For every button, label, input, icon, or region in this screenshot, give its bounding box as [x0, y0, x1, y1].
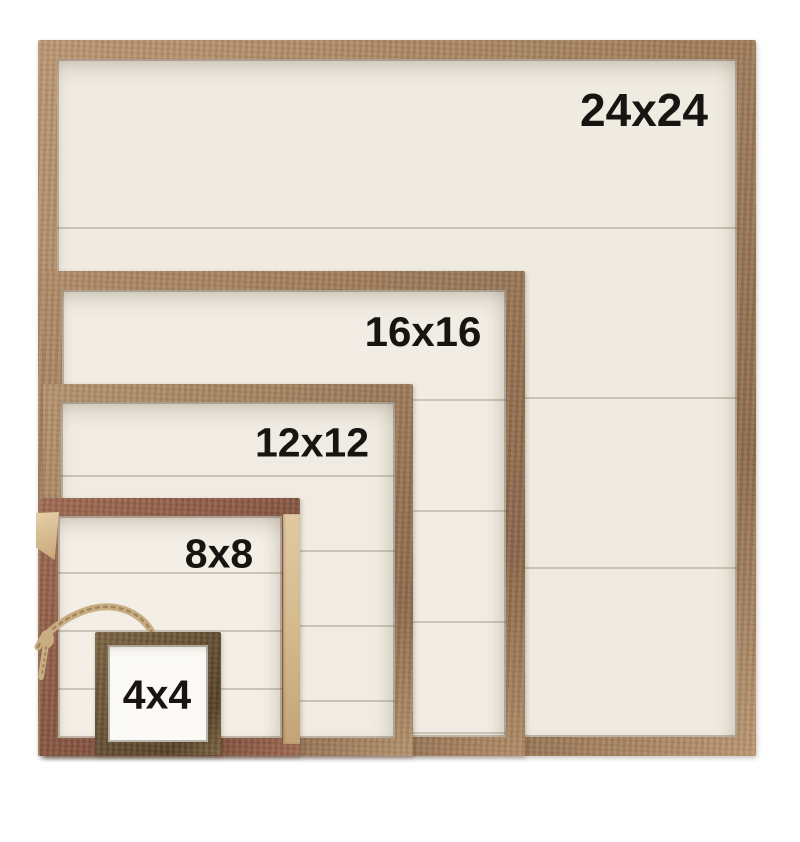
frame-8x8-raw-wood-edge	[283, 514, 300, 744]
size-label-24x24: 24x24	[580, 83, 708, 137]
size-label-8x8: 8x8	[185, 531, 253, 578]
size-label-12x12: 12x12	[255, 420, 369, 467]
product-photo: 24x24 16x16 12x12 8x8 4x4	[0, 0, 800, 842]
size-label-16x16: 16x16	[365, 308, 482, 356]
size-label-4x4: 4x4	[123, 672, 191, 719]
